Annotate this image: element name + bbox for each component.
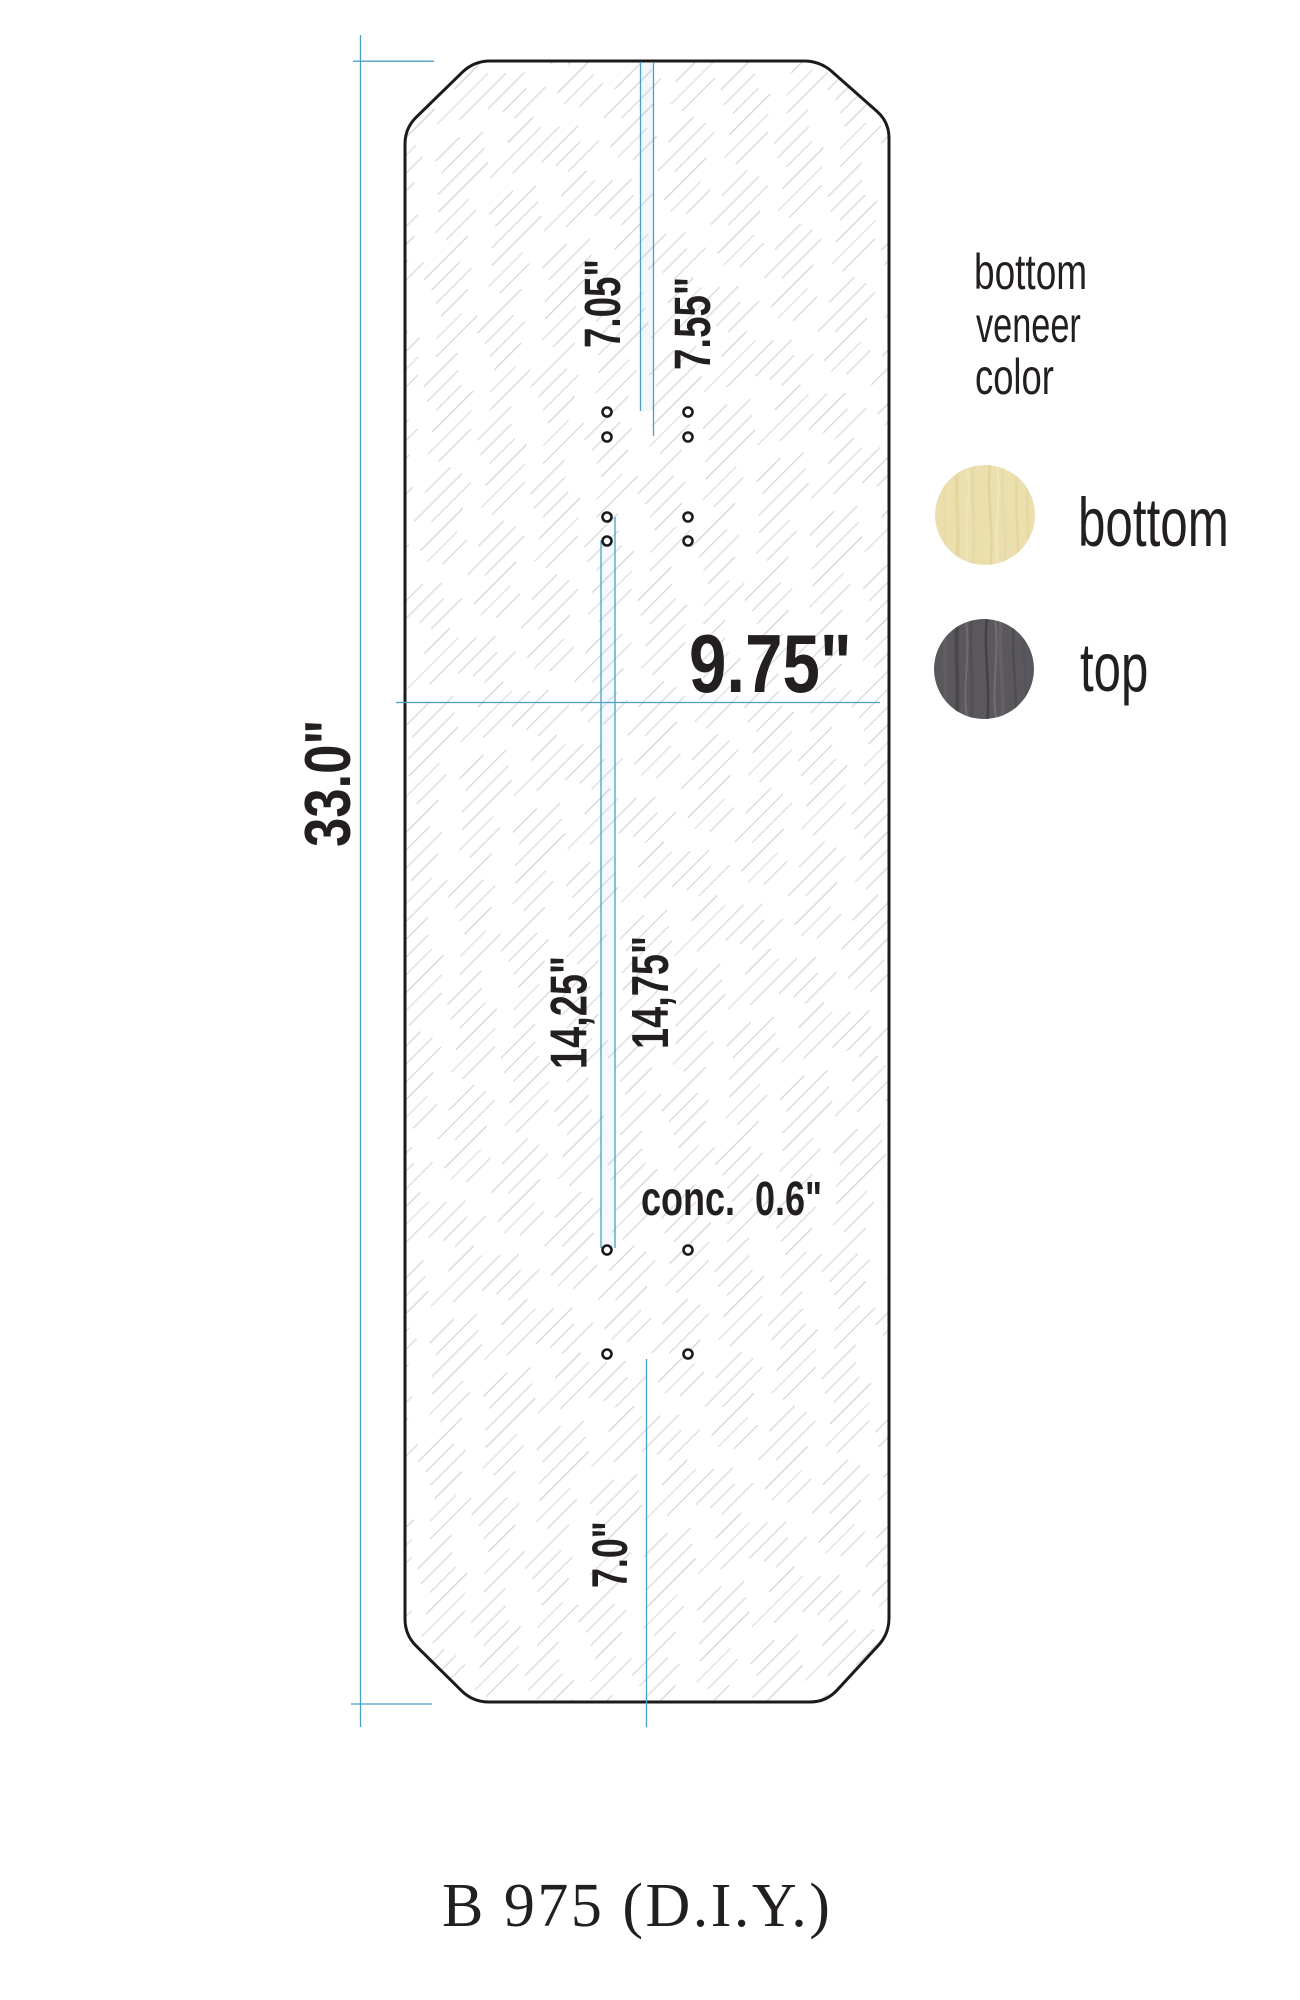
svg-text:bottom: bottom [1078,484,1229,561]
svg-text:top: top [1080,629,1148,706]
svg-text:bottom: bottom [974,245,1087,301]
svg-text:33.0": 33.0" [291,720,365,847]
svg-text:9.75": 9.75" [689,617,852,709]
svg-text:veneer: veneer [976,298,1081,354]
svg-text:7.55": 7.55" [664,277,722,370]
svg-text:7.05": 7.05" [575,259,631,348]
svg-text:color: color [975,349,1054,405]
svg-text:B 975 (D.I.Y.): B 975 (D.I.Y.) [442,1872,832,1940]
svg-text:conc. 0.6": conc. 0.6" [641,1172,822,1225]
svg-text:14,75": 14,75" [621,936,679,1049]
svg-text:14,25": 14,25" [540,956,598,1069]
svg-text:7.0": 7.0" [583,1521,638,1588]
